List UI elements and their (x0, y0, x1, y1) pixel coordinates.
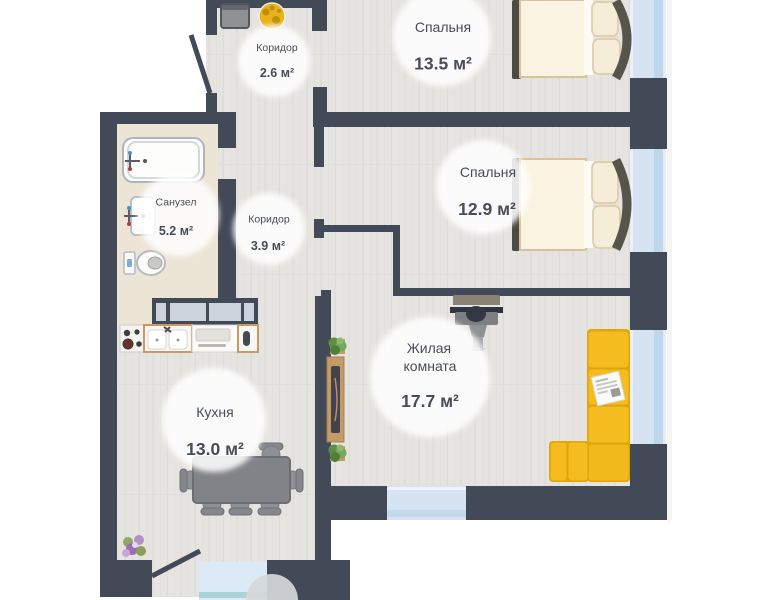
svg-text:Спальня: Спальня (415, 19, 471, 35)
svg-text:Санузел: Санузел (156, 197, 197, 209)
svg-text:Жилая: Жилая (407, 340, 451, 356)
svg-text:5.2 м²: 5.2 м² (159, 224, 193, 238)
svg-text:Коридор: Коридор (256, 42, 298, 54)
svg-text:13.0 м²: 13.0 м² (186, 439, 244, 459)
svg-text:13.5 м²: 13.5 м² (414, 54, 472, 74)
svg-text:Кухня: Кухня (196, 404, 233, 420)
svg-text:Спальня: Спальня (460, 164, 516, 180)
svg-text:3.9 м²: 3.9 м² (251, 239, 285, 253)
svg-text:17.7 м²: 17.7 м² (401, 391, 459, 411)
svg-text:Коридор: Коридор (248, 214, 290, 226)
svg-text:комната: комната (404, 358, 457, 374)
svg-text:12.9 м²: 12.9 м² (458, 199, 516, 219)
svg-text:2.6 м²: 2.6 м² (260, 66, 294, 80)
